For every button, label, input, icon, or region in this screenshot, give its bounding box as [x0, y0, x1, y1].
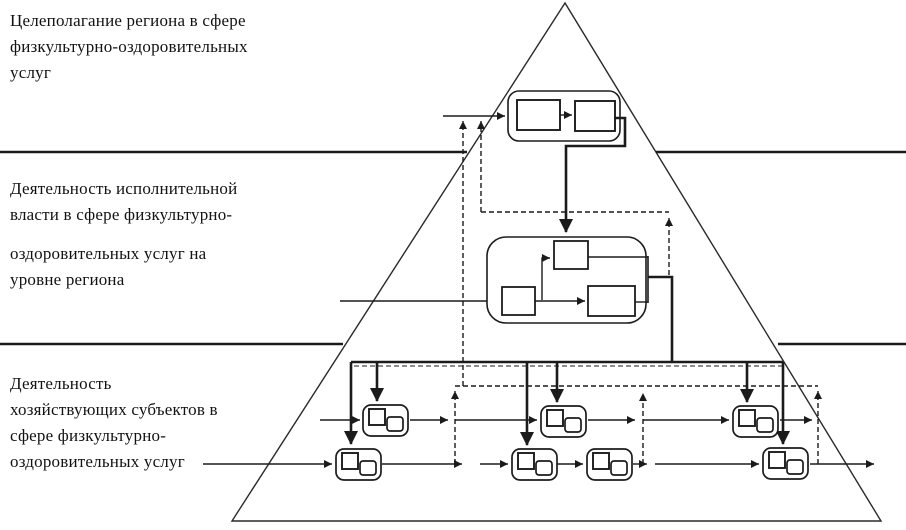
pyramid-diagram: [0, 0, 906, 530]
unit-mid-lower-right: [587, 449, 632, 480]
unit-left-lower: [336, 449, 381, 480]
unit-right-upper: [733, 406, 778, 437]
goal-setting-block: [443, 91, 625, 232]
unit-mid-lower-left: [512, 449, 557, 480]
unit-mid-upper: [541, 406, 586, 437]
unit-right-lower: [763, 448, 808, 479]
unit-left-upper: [363, 405, 408, 436]
business-entities-blocks: [203, 362, 874, 480]
executive-authority-block: [340, 237, 672, 361]
diagram-canvas: Целеполагание региона в сфере физкультур…: [0, 0, 906, 530]
tier-separator-lines: [0, 152, 906, 344]
